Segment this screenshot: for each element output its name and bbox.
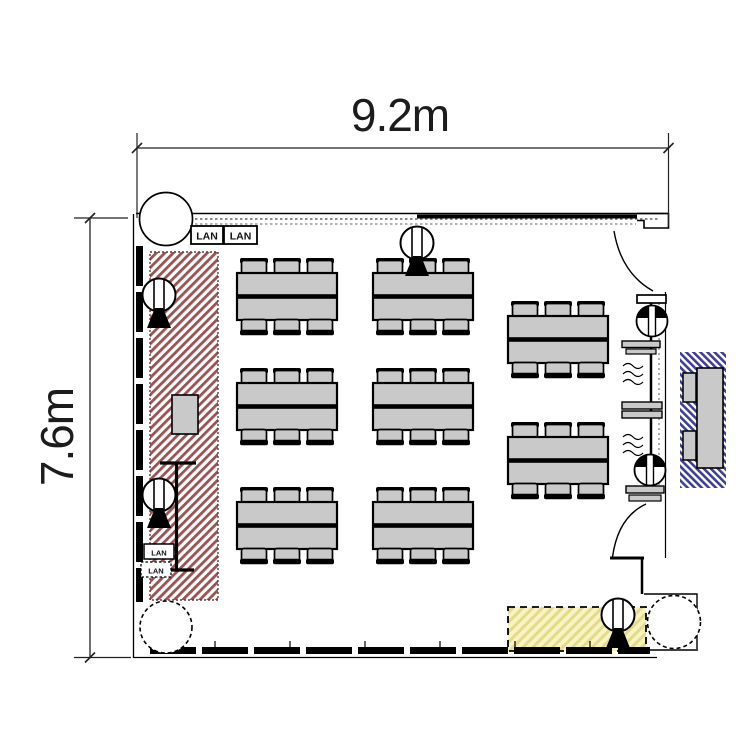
equipment-box-icon [683, 373, 696, 402]
lan-label: LAN [148, 567, 163, 576]
dimension-width [132, 133, 674, 226]
table-group [373, 368, 473, 445]
av-rack-icon [697, 368, 723, 468]
table-group [508, 422, 608, 499]
table-group [508, 301, 608, 378]
column-bottom-left [140, 601, 192, 653]
door-arc-top-right [614, 231, 653, 291]
table-group [373, 487, 473, 564]
speaker-icon [635, 455, 666, 486]
lan-label: LAN [196, 231, 218, 243]
zone-external-equipment [680, 352, 726, 488]
floor-plan: LAN LAN LAN LAN 9.2m 7.6m [0, 0, 750, 750]
equipment-box-icon [683, 431, 696, 460]
room-width-label: 9.2m [330, 92, 470, 138]
column-bottom-right [648, 596, 701, 649]
speaker-icon [637, 306, 668, 337]
door-swings [613, 231, 654, 557]
partition-hinge-marks [623, 364, 643, 385]
room-height-label: 7.6m [34, 367, 80, 507]
lan-label: LAN [151, 549, 166, 558]
door-arc-bottom-right [613, 504, 647, 557]
table-group [237, 487, 337, 564]
tables [237, 258, 608, 564]
lan-label: LAN [230, 231, 252, 243]
table-group [237, 368, 337, 445]
lan-outlets-top: LAN LAN [191, 226, 257, 244]
table-group [237, 258, 337, 335]
partition-hinge-marks [623, 435, 643, 456]
column-top-left [140, 193, 193, 246]
lectern-icon [172, 395, 198, 434]
